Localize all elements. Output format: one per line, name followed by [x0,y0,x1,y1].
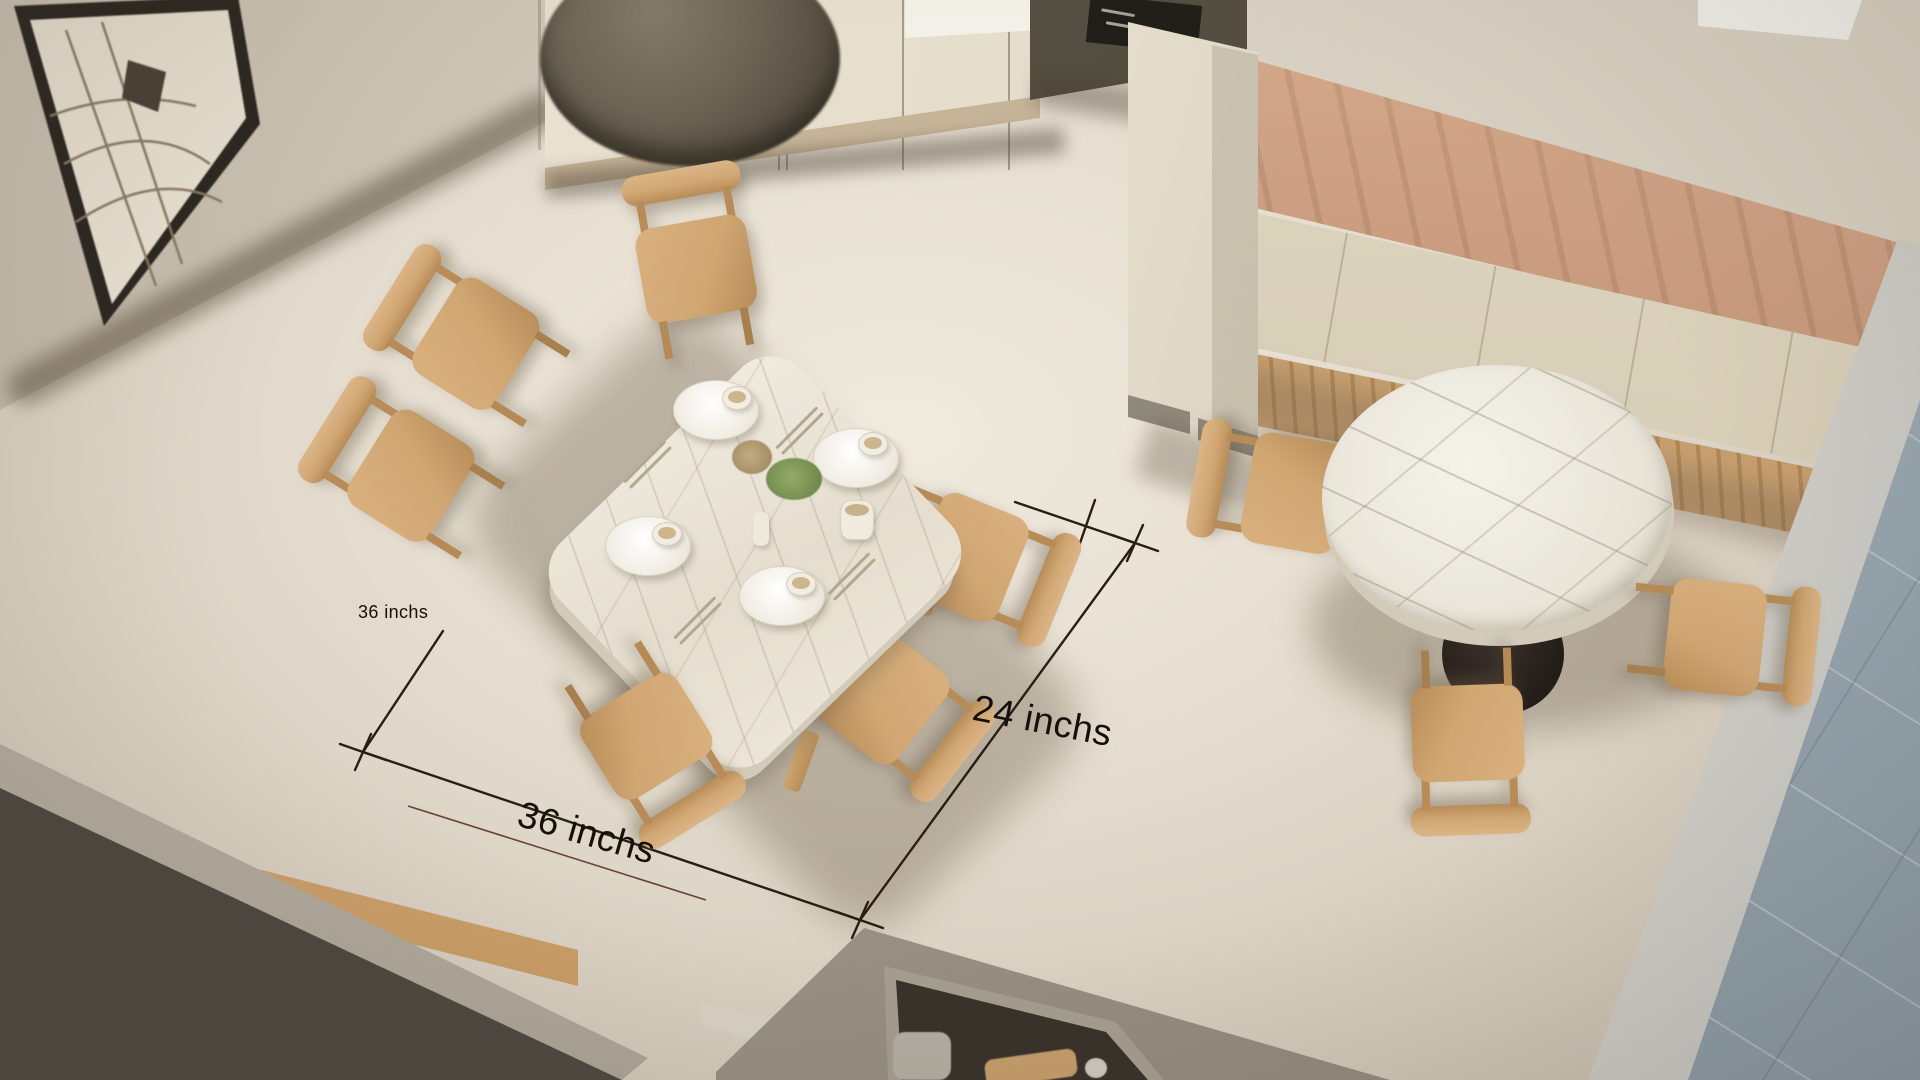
chair-leg [1635,583,1674,595]
round-table-chair [1395,643,1542,838]
chair-seat [406,271,547,417]
chair-post [1763,594,1796,605]
condiment-bottle [753,512,769,546]
cup [722,386,752,410]
chair-seat [573,666,719,807]
cup [858,432,888,456]
chair-post [1024,529,1057,548]
chair-leg [740,307,754,346]
plate [813,428,899,488]
chair-seat [341,403,482,549]
chair-leg [1627,664,1666,676]
chair-leg [469,463,505,490]
chair-leg [1421,650,1430,688]
dried-plant [732,440,772,474]
chair-leg [1503,647,1512,685]
chair-seat [1410,683,1525,783]
dimension-label-left: 36 inchs [358,602,428,623]
cup [786,572,816,596]
chair-leg [426,532,462,559]
chair-leg [534,331,570,358]
cup [652,522,682,546]
plant-centerpiece [766,458,822,500]
chair-leg [564,684,591,720]
shelf-small-item [1085,1058,1107,1078]
chair-leg [634,640,661,676]
marble-veining [1322,365,1672,631]
chair-post [1509,775,1518,807]
chair-leg [491,400,527,427]
cafe-interior-render: 36 inchs 36 inchs 24 inchs [0,0,1920,1080]
chair-post [1421,778,1430,810]
shelf-container [893,1032,951,1080]
round-table-chair [1620,558,1824,717]
vase-cup [840,500,874,540]
chair-leg [659,321,673,360]
chair-seat [1661,577,1768,698]
